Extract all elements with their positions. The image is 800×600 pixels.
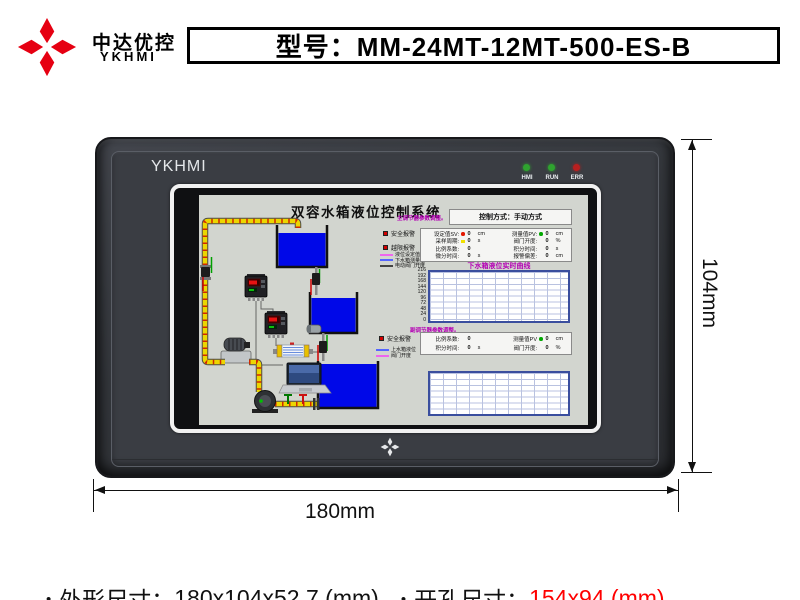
pid-controller-1 bbox=[245, 274, 267, 301]
bullet-icon: • bbox=[401, 591, 406, 600]
alarm-safety: 安全报警 bbox=[383, 229, 415, 238]
control-mode-box[interactable]: 控制方式：手动方式 bbox=[449, 209, 572, 225]
bullet-icon: • bbox=[46, 591, 51, 600]
pid2-param-panel[interactable]: 比例系数: 0 测量值PV 0cm 积分时间: 0s 阀门开度: 0% bbox=[420, 332, 572, 355]
lower-tank bbox=[318, 361, 378, 408]
arrow-up-icon bbox=[688, 140, 696, 150]
param-alarm-dev: 报警偏差: 0cm bbox=[500, 253, 572, 260]
page: 中达优控 YKHMI 型号：MM-24MT-12MT-500-ES-B YKHM… bbox=[0, 0, 800, 600]
tank1-outlet-sensor bbox=[311, 267, 320, 295]
hmi-led bbox=[523, 164, 530, 171]
width-dim-cap-right bbox=[678, 479, 679, 512]
alarm-safety-2: 安全报警 bbox=[379, 334, 411, 343]
chart1-plot bbox=[428, 270, 570, 323]
cutout-size-label: 开孔尺寸： bbox=[414, 581, 529, 600]
brand-subname: YKHMI bbox=[100, 49, 157, 64]
legend-line-icon bbox=[380, 265, 393, 267]
alarm-indicator-icon bbox=[383, 245, 388, 250]
param2-ti: 积分时间: 0s bbox=[422, 344, 500, 351]
width-dim-cap-left bbox=[93, 479, 94, 512]
cutout-size-value: 154x94 (mm) bbox=[529, 585, 664, 600]
hmi-led-label: HMI bbox=[515, 175, 539, 181]
height-dim-cap-bottom bbox=[681, 472, 712, 473]
arrow-down-icon bbox=[688, 462, 696, 472]
flow-meter bbox=[273, 343, 313, 358]
err-led-label: ERR bbox=[565, 175, 589, 181]
chart1-y-axis: 216192 168144 12096 7248 240 bbox=[412, 268, 426, 323]
height-dim-label: 104mm bbox=[697, 258, 721, 328]
arrow-right-icon bbox=[667, 486, 677, 494]
tank2-outlet-sensor bbox=[318, 333, 327, 361]
spec-line: • 外形尺寸： 180x104x52.7 (mm) • 开孔尺寸： 154x94… bbox=[46, 581, 665, 600]
model-number-box: 型号：MM-24MT-12MT-500-ES-B bbox=[187, 27, 780, 64]
alarm-indicator-icon bbox=[383, 231, 388, 236]
ykhmi-logo-icon bbox=[16, 16, 78, 78]
section1-title: 主调节器参数调整。 bbox=[397, 214, 447, 222]
pump bbox=[255, 391, 276, 412]
legend-line-icon bbox=[376, 355, 389, 357]
device-brand-label: YKHMI bbox=[151, 158, 207, 176]
chin-logo-icon bbox=[380, 437, 400, 457]
model-number: 型号：MM-24MT-12MT-500-ES-B bbox=[276, 27, 692, 64]
legend-line-icon bbox=[380, 259, 393, 261]
height-dim-line bbox=[692, 139, 693, 473]
param2-pv: 测量值PV 0cm bbox=[500, 336, 572, 343]
run-led bbox=[548, 164, 555, 171]
chart2-plot bbox=[428, 371, 570, 416]
width-dim-label: 180mm bbox=[270, 500, 410, 524]
chart2-y-axis bbox=[412, 369, 426, 416]
control-mode-label: 控制方式：手动方式 bbox=[479, 212, 542, 222]
hmi-display[interactable]: 双容水箱液位控制系统 控制方式：手动方式 主调节器参数调整。 安全报警 越限报警… bbox=[199, 195, 588, 425]
param2-kp: 比例系数: 0 bbox=[422, 336, 500, 343]
level-probe bbox=[307, 325, 321, 333]
upper-tank bbox=[277, 225, 327, 267]
err-led bbox=[573, 164, 580, 171]
height-dim-cap-top bbox=[681, 139, 712, 140]
pid-controller-2 bbox=[265, 311, 287, 338]
arrow-left-icon bbox=[95, 486, 105, 494]
run-led-label: RUN bbox=[540, 175, 564, 181]
outline-size-label: 外形尺寸： bbox=[59, 581, 174, 600]
alarm-indicator-icon bbox=[379, 336, 384, 341]
case-seam bbox=[112, 459, 658, 460]
param-td: 微分时间: 0s bbox=[422, 253, 500, 260]
param2-valve-opening: 阀门开度: 0% bbox=[500, 344, 572, 351]
legend-line-icon bbox=[380, 254, 393, 256]
legend-valve-open-2: 阀门开度 bbox=[376, 353, 411, 358]
width-dim-line bbox=[93, 490, 678, 491]
valve-motor bbox=[224, 338, 250, 351]
outline-size-value: 180x104x52.7 (mm) bbox=[174, 585, 379, 600]
legend-line-icon bbox=[376, 349, 389, 351]
pid1-param-panel[interactable]: 设定值SV: 0cm 测量值PV: 0cm 采样周期: 0s 阀门开度: 0% … bbox=[420, 228, 572, 262]
